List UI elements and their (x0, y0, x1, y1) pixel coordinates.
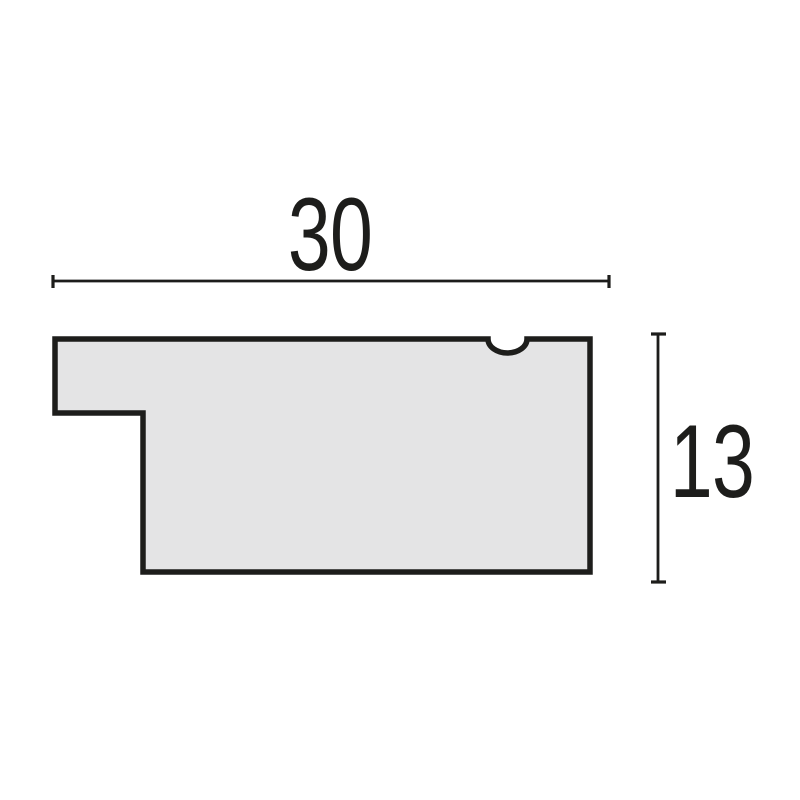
diagram-canvas: 30 13 (0, 0, 800, 800)
profile-shape (55, 339, 590, 572)
height-dimension-label: 13 (638, 410, 786, 514)
profile-diagram (0, 0, 800, 800)
width-dimension-label: 30 (256, 183, 404, 287)
